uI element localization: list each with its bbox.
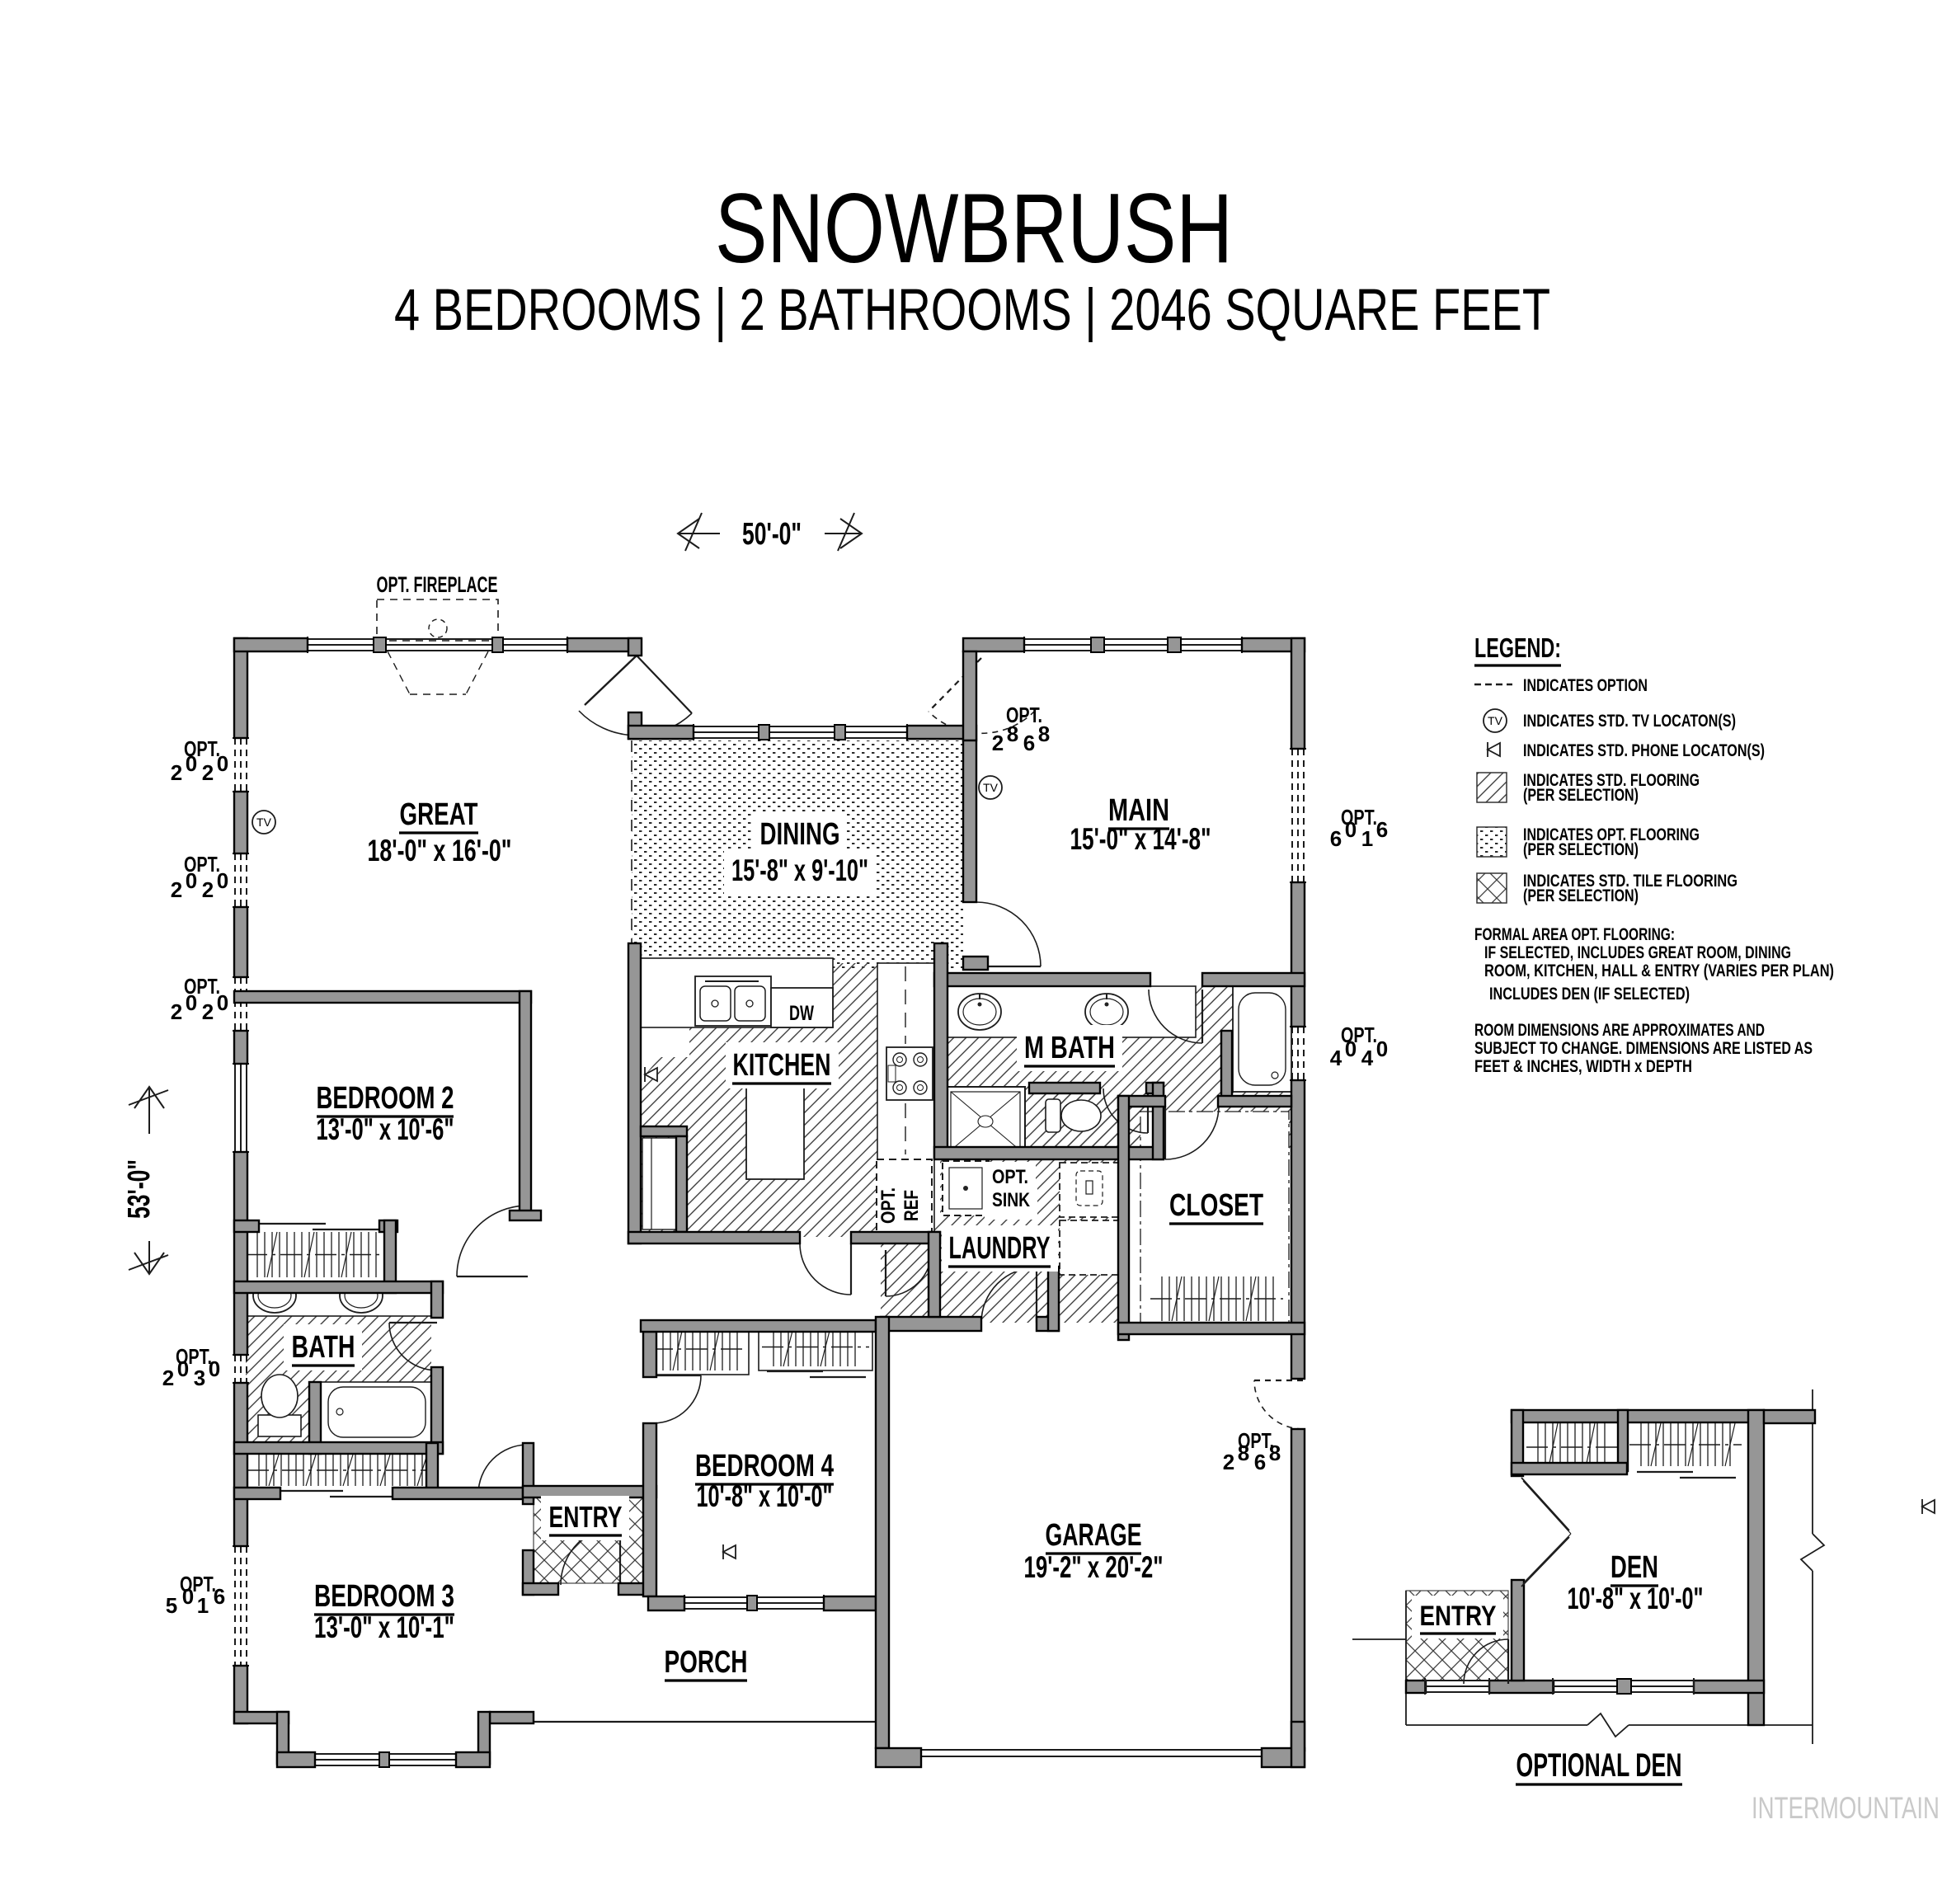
svg-text:(PER SELECTION): (PER SELECTION) xyxy=(1523,786,1639,805)
svg-text:0: 0 xyxy=(186,990,197,1015)
svg-text:FEET & INCHES, WIDTH x DEPTH: FEET & INCHES, WIDTH x DEPTH xyxy=(1474,1057,1692,1076)
svg-text:10'-8" x 10'-0": 10'-8" x 10'-0" xyxy=(1568,1582,1704,1615)
svg-text:4 BEDROOMS | 2 BATHROOMS | 204: 4 BEDROOMS | 2 BATHROOMS | 2046 SQUARE F… xyxy=(394,278,1550,343)
svg-text:KITCHEN: KITCHEN xyxy=(733,1048,831,1083)
svg-text:ENTRY: ENTRY xyxy=(1420,1601,1497,1632)
svg-text:ROOM DIMENSIONS ARE APPROXIMAT: ROOM DIMENSIONS ARE APPROXIMATES AND xyxy=(1474,1021,1765,1040)
svg-text:OPTIONAL DEN: OPTIONAL DEN xyxy=(1516,1747,1682,1784)
svg-text:0: 0 xyxy=(182,1584,194,1609)
svg-text:DEN: DEN xyxy=(1610,1550,1658,1585)
svg-text:1: 1 xyxy=(197,1593,209,1618)
svg-text:DW: DW xyxy=(789,1002,814,1025)
svg-text:0: 0 xyxy=(1376,1037,1388,1061)
svg-text:INDICATES STD. PHONE LOCATON(S: INDICATES STD. PHONE LOCATON(S) xyxy=(1523,741,1765,760)
svg-text:ROOM, KITCHEN, HALL & ENTRY (V: ROOM, KITCHEN, HALL & ENTRY (VARIES PER … xyxy=(1484,961,1834,980)
svg-text:0: 0 xyxy=(217,751,228,776)
svg-text:13'-0" x 10'-6": 13'-0" x 10'-6" xyxy=(317,1112,454,1146)
svg-text:2: 2 xyxy=(1223,1450,1234,1474)
svg-text:3: 3 xyxy=(194,1366,205,1390)
svg-text:19'-2" x 20'-2": 19'-2" x 20'-2" xyxy=(1024,1550,1164,1584)
svg-text:DINING: DINING xyxy=(760,817,840,852)
svg-text:BEDROOM 2: BEDROOM 2 xyxy=(317,1081,454,1116)
svg-text:0: 0 xyxy=(186,751,197,776)
svg-text:2: 2 xyxy=(992,731,1004,755)
svg-text:REF: REF xyxy=(900,1190,923,1221)
svg-text:TV: TV xyxy=(983,781,999,794)
svg-text:INCLUDES DEN (IF SELECTED): INCLUDES DEN (IF SELECTED) xyxy=(1489,985,1690,1004)
svg-text:0: 0 xyxy=(177,1356,189,1381)
svg-text:OPT.: OPT. xyxy=(877,1187,900,1224)
svg-text:6: 6 xyxy=(1376,817,1388,842)
svg-text:0: 0 xyxy=(217,868,228,893)
svg-text:18'-0" x 16'-0": 18'-0" x 16'-0" xyxy=(368,834,512,867)
svg-text:2: 2 xyxy=(202,760,214,785)
svg-text:OPT. FIREPLACE: OPT. FIREPLACE xyxy=(377,572,498,597)
svg-text:GREAT: GREAT xyxy=(400,797,478,832)
svg-text:IF SELECTED, INCLUDES GREAT RO: IF SELECTED, INCLUDES GREAT ROOM, DINING xyxy=(1484,943,1791,962)
svg-text:2: 2 xyxy=(202,877,214,902)
svg-text:LAUNDRY: LAUNDRY xyxy=(949,1231,1051,1266)
svg-text:INTERMOUNTAIN: INTERMOUNTAIN xyxy=(1752,1791,1940,1825)
svg-text:15'-8" x 9'-10": 15'-8" x 9'-10" xyxy=(731,853,868,887)
svg-text:SINK: SINK xyxy=(992,1189,1031,1211)
svg-text:0: 0 xyxy=(1345,1037,1357,1061)
svg-text:2: 2 xyxy=(171,999,182,1024)
svg-text:6: 6 xyxy=(1330,826,1342,851)
svg-text:TV: TV xyxy=(1488,714,1503,727)
svg-text:5: 5 xyxy=(166,1593,177,1618)
svg-text:6: 6 xyxy=(1023,731,1035,755)
svg-text:1: 1 xyxy=(1361,826,1373,851)
svg-text:FORMAL AREA OPT. FLOORING:: FORMAL AREA OPT. FLOORING: xyxy=(1474,925,1675,944)
svg-text:8: 8 xyxy=(1007,722,1018,746)
svg-text:ENTRY: ENTRY xyxy=(549,1500,623,1534)
svg-text:BEDROOM 4: BEDROOM 4 xyxy=(695,1449,834,1483)
svg-text:2: 2 xyxy=(171,877,182,902)
svg-text:0: 0 xyxy=(209,1356,220,1381)
svg-text:2: 2 xyxy=(171,760,182,785)
svg-text:OPT.: OPT. xyxy=(992,1166,1028,1188)
svg-text:GARAGE: GARAGE xyxy=(1046,1518,1142,1553)
svg-text:TV: TV xyxy=(256,816,272,829)
svg-text:0: 0 xyxy=(1345,817,1357,842)
svg-text:8: 8 xyxy=(1269,1441,1281,1465)
svg-text:2: 2 xyxy=(202,999,214,1024)
svg-text:10'-8" x 10'-0": 10'-8" x 10'-0" xyxy=(697,1479,833,1513)
svg-text:INDICATES STD. TV LOCATON(S): INDICATES STD. TV LOCATON(S) xyxy=(1523,712,1736,731)
svg-text:PORCH: PORCH xyxy=(665,1645,748,1680)
svg-text:6: 6 xyxy=(214,1584,225,1609)
svg-text:8: 8 xyxy=(1038,722,1050,746)
svg-text:2: 2 xyxy=(162,1366,174,1390)
svg-text:SUBJECT TO CHANGE. DIMENSIONS: SUBJECT TO CHANGE. DIMENSIONS ARE LISTED… xyxy=(1474,1039,1813,1058)
svg-text:LEGEND:: LEGEND: xyxy=(1474,632,1561,663)
svg-text:4: 4 xyxy=(1330,1046,1342,1070)
svg-text:15'-0" x 14'-8": 15'-0" x 14'-8" xyxy=(1070,822,1211,856)
svg-text:M BATH: M BATH xyxy=(1024,1031,1115,1065)
svg-text:0: 0 xyxy=(217,990,228,1015)
svg-text:8: 8 xyxy=(1238,1441,1249,1465)
svg-text:(PER SELECTION): (PER SELECTION) xyxy=(1523,840,1639,859)
svg-text:13'-0" x 10'-1": 13'-0" x 10'-1" xyxy=(314,1610,454,1644)
svg-text:BEDROOM 3: BEDROOM 3 xyxy=(314,1579,454,1614)
svg-text:53'-0": 53'-0" xyxy=(122,1159,157,1219)
svg-text:50'-0": 50'-0" xyxy=(742,517,802,552)
svg-text:6: 6 xyxy=(1254,1450,1266,1474)
svg-text:(PER SELECTION): (PER SELECTION) xyxy=(1523,886,1639,905)
svg-text:INDICATES OPTION: INDICATES OPTION xyxy=(1523,676,1648,695)
svg-text:SNOWBRUSH: SNOWBRUSH xyxy=(715,173,1233,284)
svg-text:CLOSET: CLOSET xyxy=(1169,1188,1263,1223)
svg-text:BATH: BATH xyxy=(292,1330,355,1365)
svg-text:0: 0 xyxy=(186,868,197,893)
svg-text:4: 4 xyxy=(1361,1046,1374,1070)
